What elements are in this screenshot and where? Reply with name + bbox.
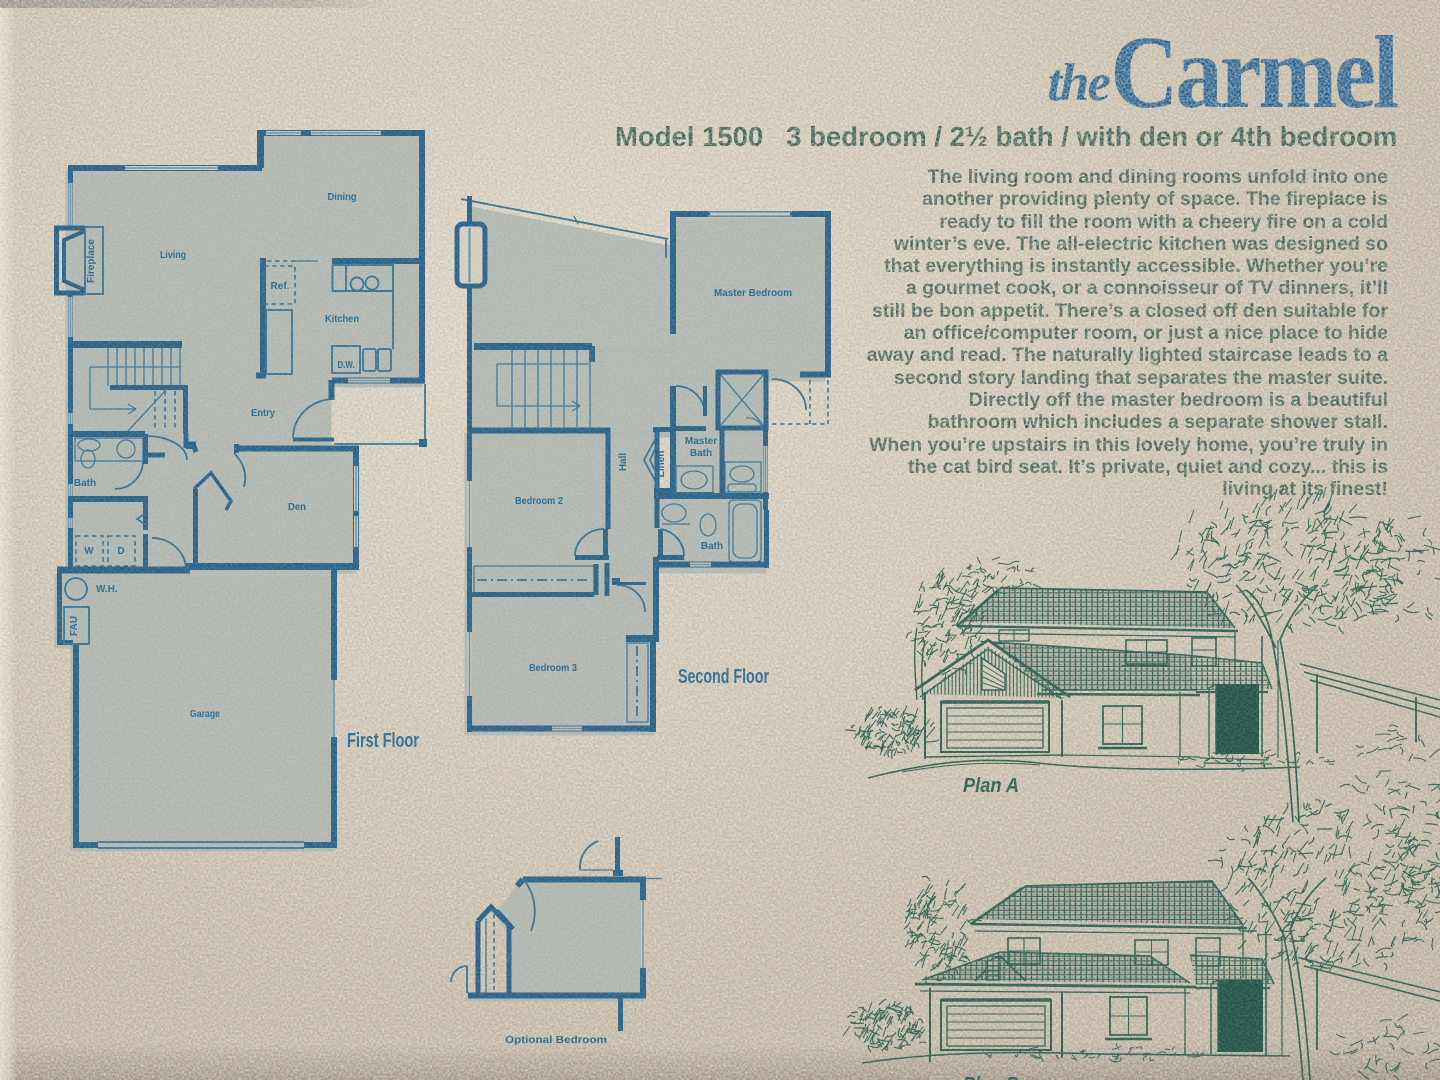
svg-text:Master Bedroom: Master Bedroom [714,288,792,299]
svg-text:Optional Bedroom: Optional Bedroom [505,1035,607,1046]
svg-text:Plan A: Plan A [963,775,1019,797]
svg-text:Bath: Bath [690,448,712,459]
svg-text:Kitchen: Kitchen [325,314,359,325]
svg-text:FAU: FAU [69,616,80,636]
svg-text:W.H.: W.H. [96,584,118,595]
svg-text:Bath: Bath [74,478,96,489]
svg-text:Living: Living [160,250,186,261]
svg-text:Linen: Linen [656,451,667,478]
svg-text:Bedroom 2: Bedroom 2 [515,496,563,507]
svg-text:First Floor: First Floor [347,730,419,752]
svg-text:Den: Den [288,502,306,513]
svg-text:Entry: Entry [251,408,275,419]
svg-text:Second Floor: Second Floor [678,666,769,688]
svg-text:Ref.: Ref. [271,281,290,292]
svg-text:Garage: Garage [190,709,220,720]
svg-text:D.W.: D.W. [338,360,355,371]
svg-text:Dining: Dining [328,192,357,203]
svg-text:Plan B: Plan B [963,1074,1019,1080]
svg-text:W: W [84,546,94,557]
svg-text:Hall: Hall [618,453,629,472]
svg-text:Master: Master [685,436,717,447]
svg-text:Bedroom 3: Bedroom 3 [529,663,577,674]
svg-text:Fireplace: Fireplace [86,239,97,283]
svg-text:D: D [117,546,124,557]
svg-text:Bath: Bath [701,541,723,552]
